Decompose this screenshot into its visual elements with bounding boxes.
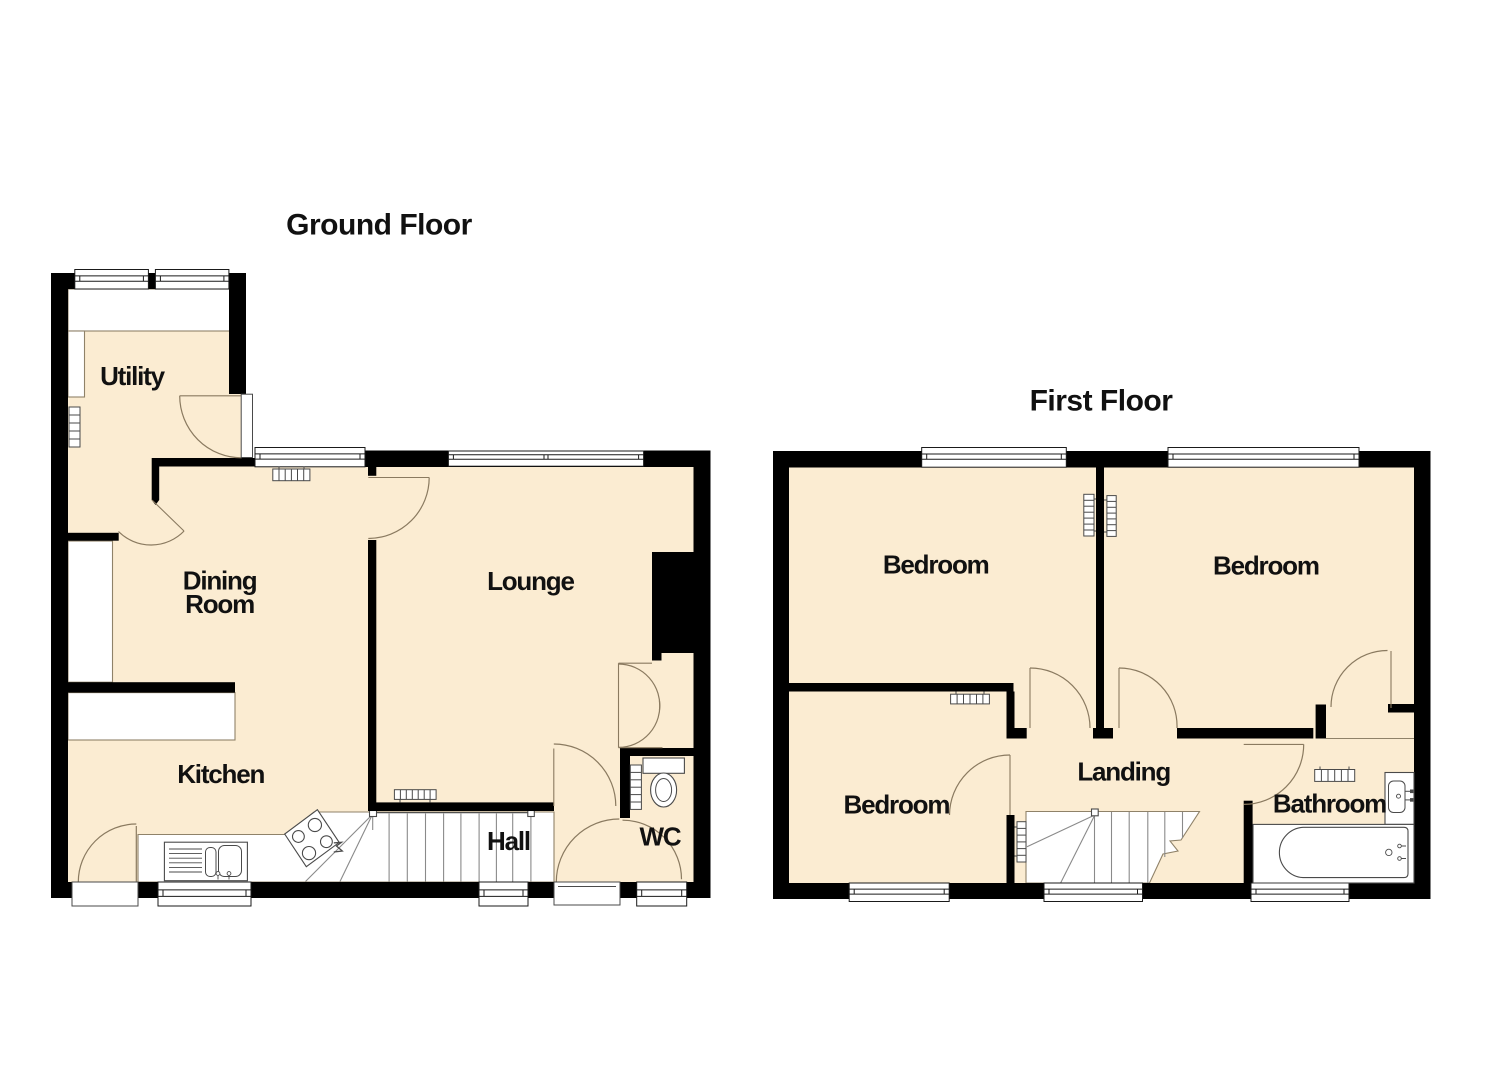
svg-text:Bathroom: Bathroom	[1273, 788, 1386, 818]
svg-text:Room: Room	[185, 589, 254, 619]
svg-text:WC: WC	[640, 822, 682, 852]
svg-text:Hall: Hall	[487, 826, 530, 856]
svg-text:Kitchen: Kitchen	[177, 759, 264, 789]
svg-text:Ground Floor: Ground Floor	[286, 209, 472, 242]
svg-text:Lounge: Lounge	[487, 566, 574, 596]
svg-text:Utility: Utility	[100, 361, 166, 391]
svg-text:Landing: Landing	[1077, 756, 1170, 786]
svg-text:Bedroom: Bedroom	[844, 790, 950, 820]
svg-text:Bedroom: Bedroom	[883, 549, 989, 579]
svg-text:First Floor: First Floor	[1030, 385, 1174, 418]
svg-text:Bedroom: Bedroom	[1213, 551, 1319, 581]
